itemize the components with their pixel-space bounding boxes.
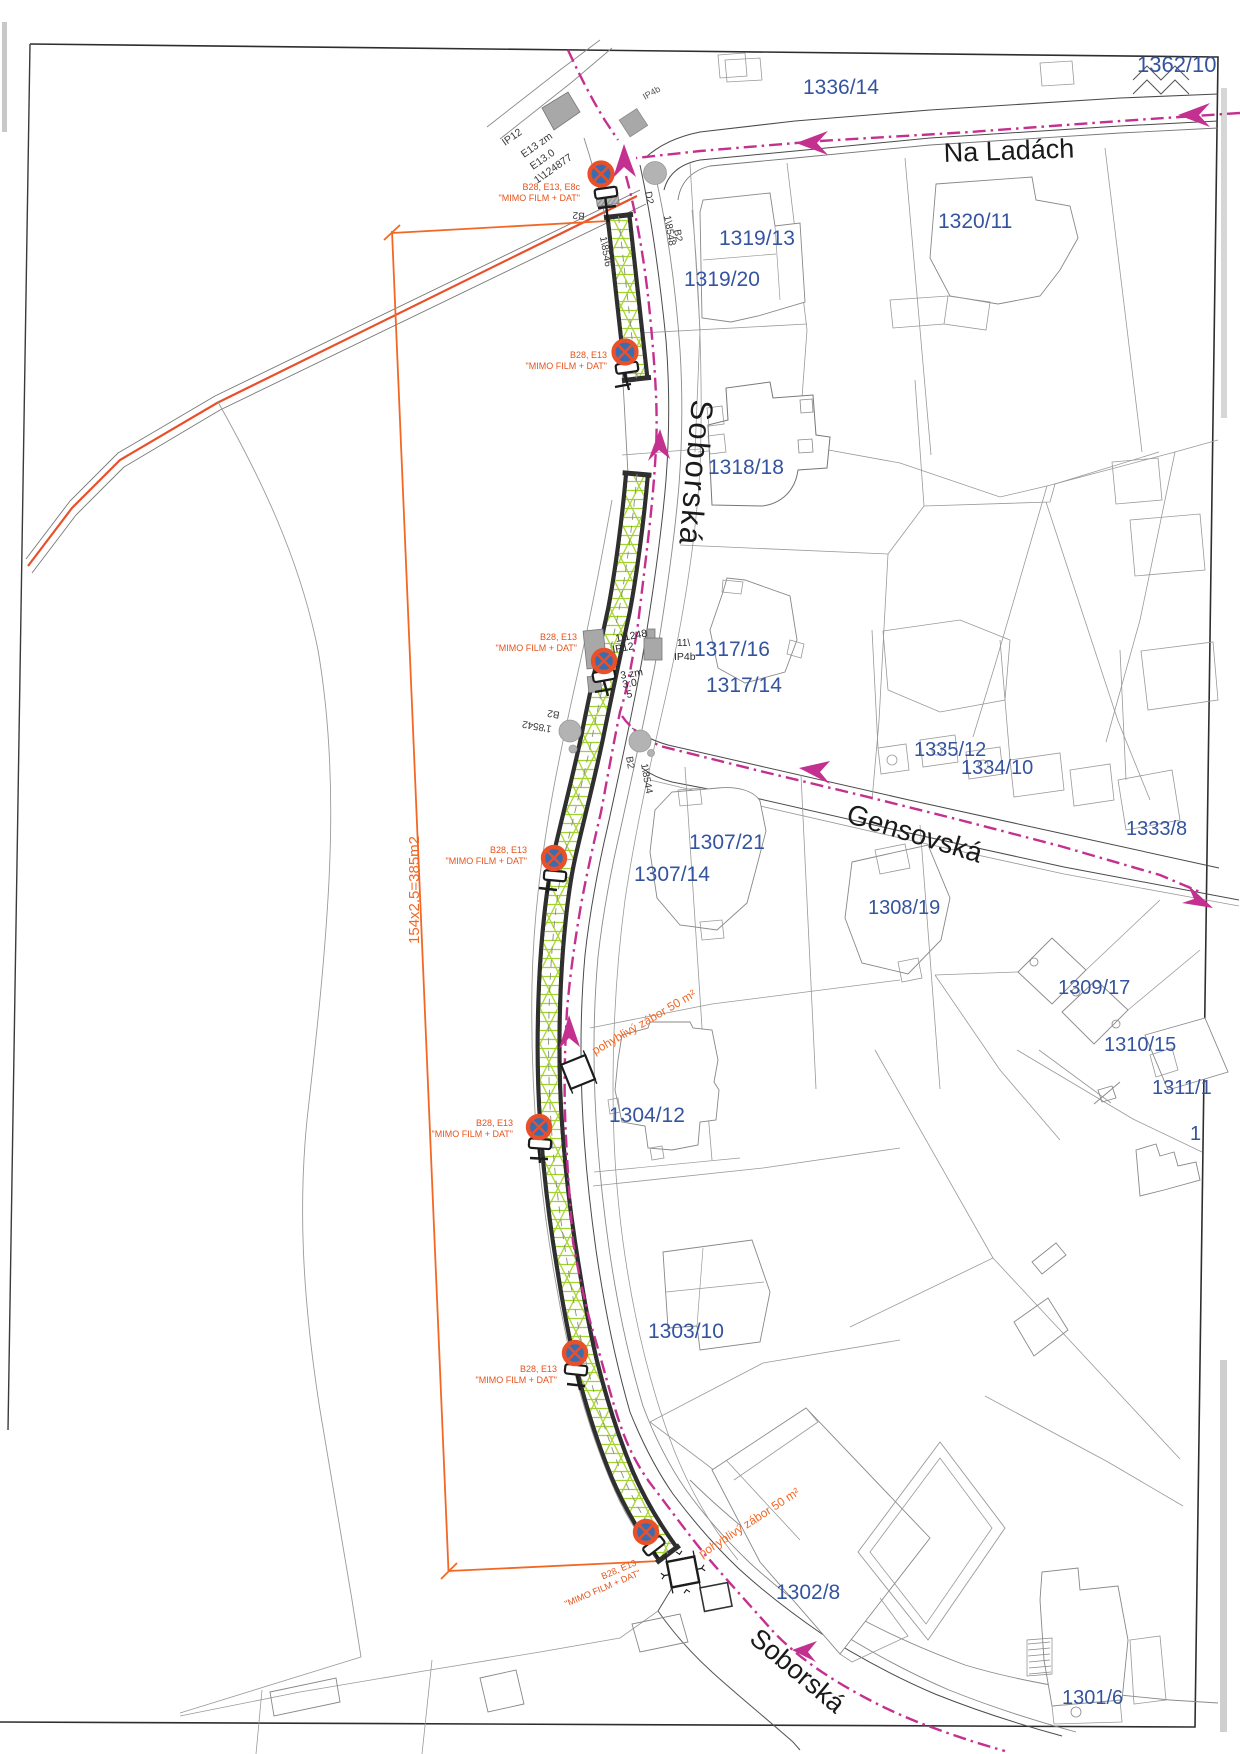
svg-text:1307/14: 1307/14 xyxy=(634,863,710,886)
svg-text:1307/21: 1307/21 xyxy=(689,831,765,854)
svg-text:"MIMO FILM + DAT": "MIMO FILM + DAT" xyxy=(476,1375,557,1385)
svg-text:1311/1: 1311/1 xyxy=(1152,1077,1212,1099)
svg-text:1336/14: 1336/14 xyxy=(803,76,879,99)
svg-text:154x2,5=385m2: 154x2,5=385m2 xyxy=(406,836,423,944)
svg-text:IP4b: IP4b xyxy=(674,651,696,663)
svg-text:B28, E13: B28, E13 xyxy=(570,350,607,360)
svg-text:1310/15: 1310/15 xyxy=(1104,1034,1176,1056)
svg-text:"MIMO FILM + DAT": "MIMO FILM + DAT" xyxy=(496,643,577,653)
svg-text:B28, E13: B28, E13 xyxy=(520,1364,557,1374)
svg-text:1319/20: 1319/20 xyxy=(684,268,760,291)
svg-text:1334/10: 1334/10 xyxy=(961,757,1033,779)
svg-text:B28, E13: B28, E13 xyxy=(540,632,577,642)
svg-text:B28, E13: B28, E13 xyxy=(490,845,527,855)
svg-text:1317/16: 1317/16 xyxy=(694,638,770,661)
svg-text:"MIMO FILM + DAT": "MIMO FILM + DAT" xyxy=(499,193,580,203)
svg-text:1: 1 xyxy=(1190,1123,1201,1145)
svg-text:B2: B2 xyxy=(546,707,560,720)
svg-text:B2: B2 xyxy=(671,229,684,243)
svg-text:1333/8: 1333/8 xyxy=(1126,818,1187,840)
svg-text:"MIMO FILM + DAT": "MIMO FILM + DAT" xyxy=(446,856,527,866)
svg-text:1302/8: 1302/8 xyxy=(776,1581,840,1604)
svg-text:1304/12: 1304/12 xyxy=(609,1104,685,1127)
svg-text:1319/13: 1319/13 xyxy=(719,227,795,250)
svg-text:1309/17: 1309/17 xyxy=(1058,977,1130,999)
svg-text:B28, E13, E8c: B28, E13, E8c xyxy=(522,182,580,192)
svg-text:1362/10: 1362/10 xyxy=(1137,52,1217,77)
svg-text:1320/11: 1320/11 xyxy=(938,210,1012,233)
svg-text:B2: B2 xyxy=(623,756,636,770)
svg-text:1301/6: 1301/6 xyxy=(1062,1687,1123,1709)
svg-text:11\: 11\ xyxy=(677,638,690,649)
svg-text:1303/10: 1303/10 xyxy=(648,1320,724,1343)
svg-text:"MIMO FILM + DAT": "MIMO FILM + DAT" xyxy=(432,1129,513,1139)
svg-text:1317/14: 1317/14 xyxy=(706,674,782,697)
svg-text:D2: D2 xyxy=(642,191,655,206)
svg-text:1308/19: 1308/19 xyxy=(868,897,940,919)
svg-text:Na Ladách: Na Ladách xyxy=(943,133,1075,168)
svg-text:B2: B2 xyxy=(572,209,586,221)
svg-text:1318/18: 1318/18 xyxy=(708,456,784,479)
svg-text:"MIMO FILM + DAT": "MIMO FILM + DAT" xyxy=(526,361,607,371)
svg-text:B28, E13: B28, E13 xyxy=(476,1118,513,1128)
